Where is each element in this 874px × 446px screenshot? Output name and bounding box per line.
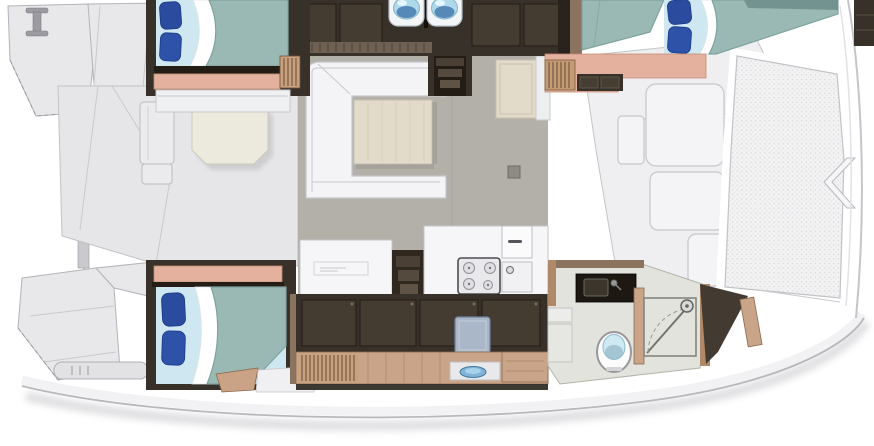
- cabin-seat: [156, 90, 290, 112]
- fridge-cabinet: [496, 60, 536, 118]
- starboard-stern-platform: [18, 262, 154, 380]
- bow-locker: [854, 0, 874, 46]
- bow-locker-wedge: [700, 284, 748, 364]
- deck-plan-canvas: [0, 0, 874, 446]
- duvet: [206, 0, 288, 66]
- bed-step: [154, 266, 282, 282]
- bed-step: [154, 74, 280, 89]
- toilet: [597, 332, 631, 372]
- companionway-steps: [428, 52, 472, 96]
- vanity-stool: [455, 317, 490, 354]
- saloon-table: [354, 100, 437, 169]
- cooktop: [458, 258, 500, 294]
- bow-trim: [740, 297, 762, 347]
- louver-locker: [280, 56, 300, 88]
- hull-cabinets: [290, 294, 548, 390]
- port-aft-cabin: [146, 0, 310, 112]
- hull-floor: [296, 352, 548, 390]
- floor-hatch: [508, 166, 520, 178]
- boarding-step: [54, 362, 148, 379]
- vanity-basin: [576, 274, 636, 302]
- locker-shelves: [502, 352, 548, 382]
- floor-grate: [298, 354, 358, 382]
- floor-plan-stage: [0, 0, 874, 446]
- galley-shelves: [392, 250, 424, 298]
- cockpit-bench: [140, 102, 174, 184]
- cockpit: [58, 86, 298, 266]
